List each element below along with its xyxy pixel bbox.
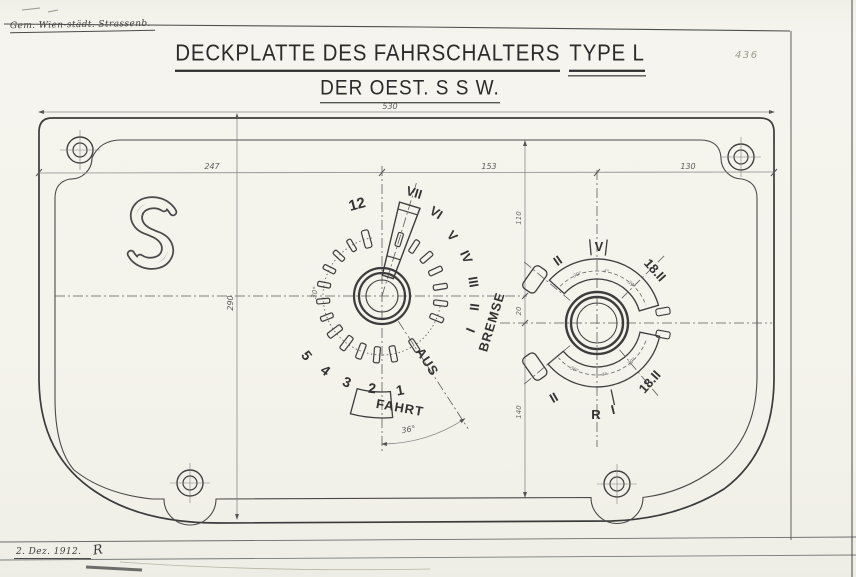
- main-dial-label-1: 1: [395, 381, 406, 398]
- tick-drive-9: [323, 264, 337, 274]
- tick-drive-2: [373, 347, 380, 363]
- signature-initial: R: [92, 542, 104, 558]
- screw-hole-bottom-right: [597, 464, 637, 504]
- scan-pencil-marks: [22, 8, 58, 12]
- main-dial-label-3: 3: [340, 373, 353, 391]
- reverser-deg-5: 4°: [601, 372, 608, 379]
- screw-hole-bottom-left: [170, 463, 210, 503]
- footer-annotation: 2. Dez. 1912.R: [14, 541, 103, 559]
- tick-drive-11: [346, 239, 357, 253]
- dim-line-segments: [39, 172, 774, 173]
- main-dial-label-vii: VII: [404, 183, 424, 202]
- dim-arc-fahrt-angle: [382, 419, 465, 444]
- tick-brake-iv: [428, 266, 443, 277]
- reverser-label-18ii-bottom: 18.II: [636, 367, 664, 396]
- frame-line-bottom-2: [0, 555, 856, 560]
- scanned-drawing-sheet: { "sheet": { "stamp": "Gem. Wien-städt. …: [0, 0, 856, 577]
- reverser-label-ii-bottom: II: [547, 389, 561, 406]
- drawing-date: 2. Dez. 1912.: [14, 547, 91, 559]
- main-dial-position-arc: [323, 238, 440, 355]
- main-dial-label-2: 2: [367, 380, 377, 397]
- dim-lower-offset: 140: [515, 405, 523, 419]
- scan-artifact-mark: [86, 567, 142, 570]
- reverser-deg-6: 30°: [569, 365, 580, 374]
- screw-hole-top-left: [60, 130, 100, 170]
- reverser-label-i: I: [609, 402, 616, 417]
- main-dial-label-bremse: BREMSE: [475, 290, 507, 353]
- cover-plate: [39, 118, 774, 525]
- sheet-frame: [0, 0, 856, 577]
- tick-brake-vi: [408, 239, 420, 254]
- main-dial: 36° 30° 12 1 2 3 4 5 I II III IV V VI VI…: [298, 183, 508, 444]
- main-dial-label-iii: III: [465, 275, 482, 288]
- reverser-deg-2: 4°: [603, 269, 610, 276]
- tick-brake-v: [420, 251, 434, 264]
- frame-line-top: [4, 24, 790, 31]
- tick-brake-iii: [433, 283, 448, 290]
- dim-plate-height: 290: [226, 295, 235, 310]
- tick-drive-12: [361, 229, 372, 248]
- frame-scan-crease: [120, 562, 430, 570]
- reverser-deg-4: 39°: [627, 356, 638, 367]
- screw-hole-top-right: [721, 137, 761, 177]
- main-dial-label-aus: AUS: [413, 345, 442, 379]
- reverser-dial: 30° 4° 39° 39° 4° 30° II V 18.II II R I …: [521, 239, 671, 422]
- tick-brake-ii: [433, 300, 448, 307]
- main-dial-label-iv: IV: [457, 248, 476, 266]
- dim-aus-angle: 30°: [310, 286, 320, 300]
- dim-left-segment: 247: [204, 162, 220, 171]
- main-dial-label-vi: VI: [427, 203, 445, 222]
- reverser-slot-tab-bottom: [655, 330, 670, 339]
- dim-upper-offset: 110: [515, 211, 523, 225]
- main-dial-label-i: I: [463, 326, 478, 335]
- reverser-slot-tab-top: [655, 307, 670, 316]
- dim-middle-segment: 153: [481, 162, 496, 171]
- ssw-monogram-icon: [131, 200, 173, 265]
- reverser-label-v: V: [595, 239, 604, 254]
- frame-line-bottom-1: [0, 537, 856, 542]
- reverser-deg-3: 39°: [626, 280, 637, 291]
- tick-reverser-v-right: [605, 240, 607, 256]
- main-dial-label-fahrt: FAHRT: [375, 396, 425, 419]
- main-dial-label-ii: II: [467, 303, 483, 312]
- reverser-position-ticks: [590, 239, 615, 405]
- main-dial-label-5: 5: [298, 347, 316, 363]
- reverser-label-ii-top: II: [550, 252, 565, 268]
- main-dial-label-v: V: [444, 227, 461, 244]
- dim-right-segment: 130: [680, 162, 695, 171]
- tick-drive-3: [355, 343, 366, 360]
- dim-fahrt-angle: 36°: [401, 424, 417, 435]
- main-dial-label-12: 12: [347, 194, 368, 215]
- reverser-label-r: R: [591, 407, 601, 422]
- reverser-deg-1: 30°: [572, 270, 583, 279]
- technical-drawing: 530 247 153 130 290 110 20 140: [0, 0, 856, 577]
- tick-reverser-v-left: [590, 239, 591, 255]
- dim-center-offset: 20: [515, 306, 523, 315]
- plate-outline-outer: [39, 118, 774, 523]
- tick-drive-7: [317, 298, 330, 304]
- main-dial-label-4: 4: [318, 361, 334, 379]
- dim-total-width: 530: [382, 102, 397, 111]
- tick-drive-1: [389, 345, 398, 362]
